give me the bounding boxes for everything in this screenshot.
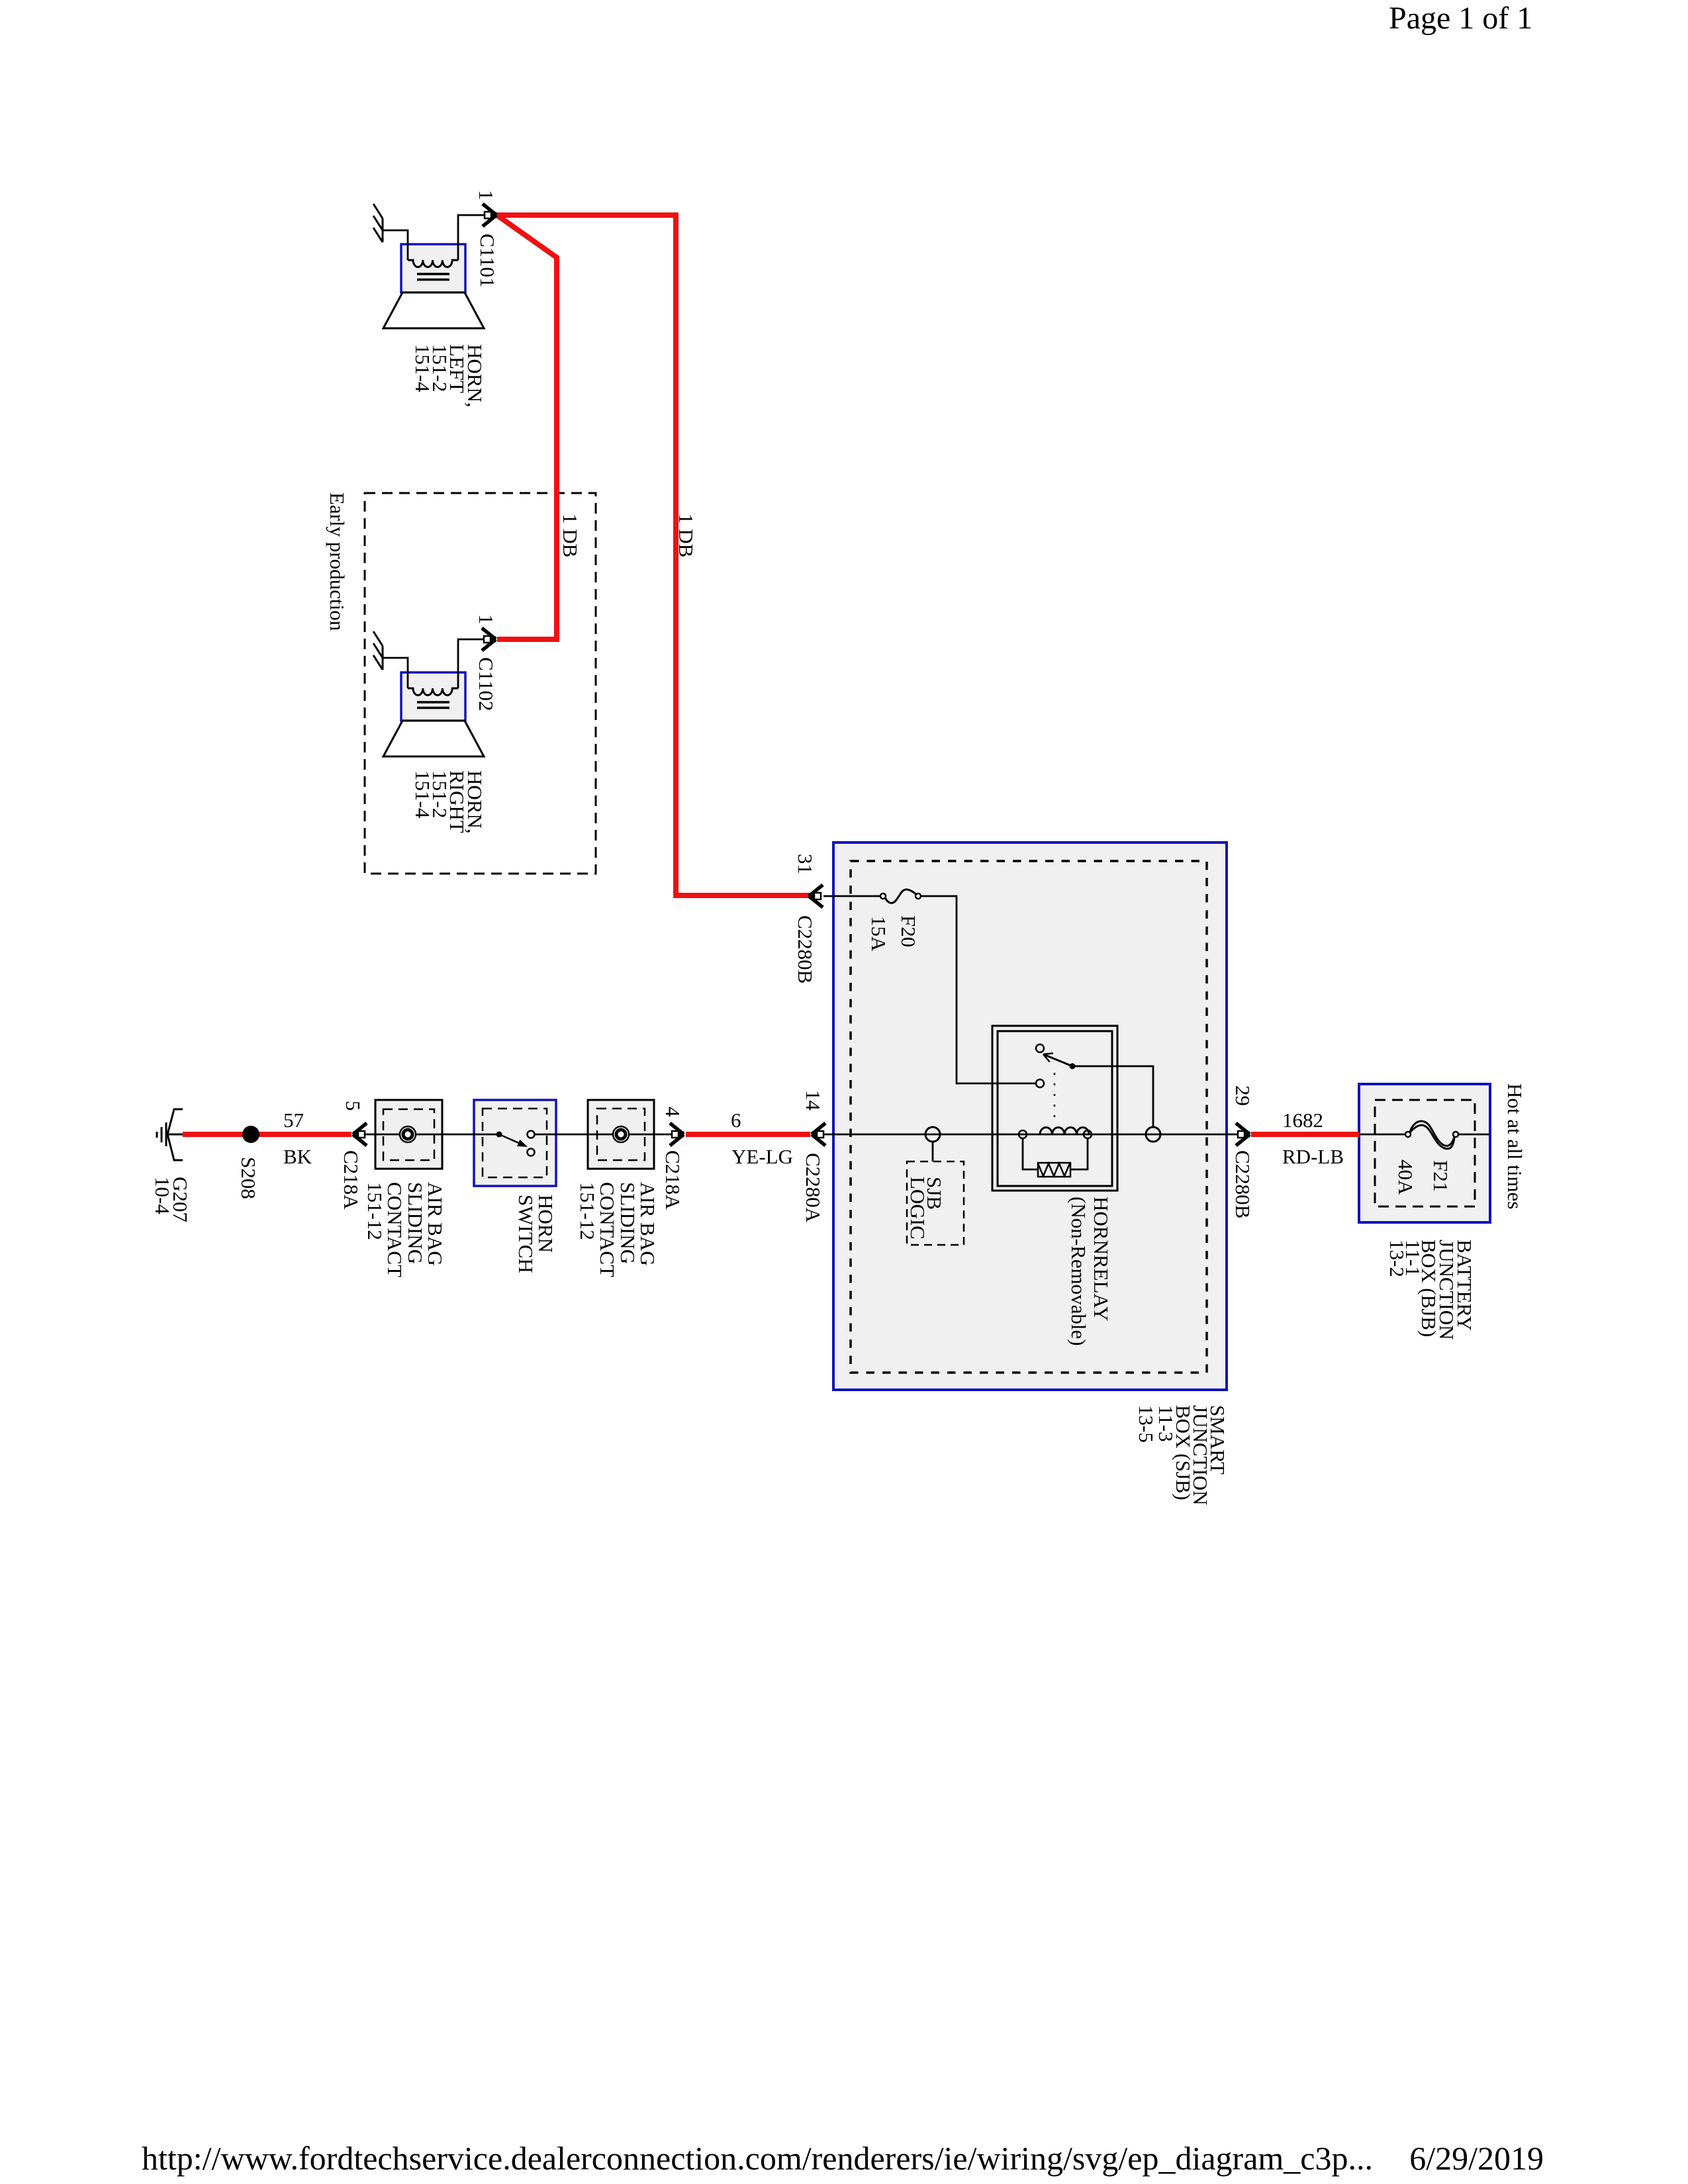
svg-text:14: 14 bbox=[802, 1090, 825, 1111]
svg-text:31: 31 bbox=[794, 854, 817, 874]
svg-text:(Non-Removable): (Non-Removable) bbox=[1067, 1197, 1090, 1346]
svg-text:15A: 15A bbox=[867, 916, 890, 952]
svg-text:151-4: 151-4 bbox=[411, 344, 434, 392]
svg-text:Early production: Early production bbox=[326, 492, 349, 631]
svg-text:151-12: 151-12 bbox=[576, 1182, 599, 1240]
svg-text:SLIDING: SLIDING bbox=[404, 1182, 427, 1264]
svg-text:http://www.fordtechservice.dea: http://www.fordtechservice.dealerconnect… bbox=[142, 2140, 1373, 2177]
svg-text:C1101: C1101 bbox=[476, 234, 499, 288]
svg-text:13-5: 13-5 bbox=[1135, 1405, 1158, 1443]
svg-text:YE-LG: YE-LG bbox=[731, 1145, 793, 1168]
svg-text:5: 5 bbox=[342, 1101, 365, 1111]
svg-text:C2280B: C2280B bbox=[1231, 1150, 1254, 1218]
svg-text:29: 29 bbox=[1231, 1085, 1254, 1106]
svg-text:57: 57 bbox=[283, 1109, 304, 1132]
svg-text:6/29/2019: 6/29/2019 bbox=[1409, 2140, 1544, 2177]
svg-text:1 DB: 1 DB bbox=[559, 514, 582, 557]
svg-text:Hot at all times: Hot at all times bbox=[1503, 1083, 1526, 1209]
svg-text:HORNRELAY: HORNRELAY bbox=[1090, 1197, 1113, 1321]
svg-text:1682: 1682 bbox=[1282, 1109, 1323, 1132]
svg-text:LOGIC: LOGIC bbox=[906, 1177, 929, 1240]
svg-text:F20: F20 bbox=[897, 915, 920, 947]
svg-text:1 DB: 1 DB bbox=[675, 514, 698, 557]
svg-text:SWITCH: SWITCH bbox=[514, 1195, 538, 1273]
svg-text:151-12: 151-12 bbox=[363, 1182, 387, 1240]
svg-text:1: 1 bbox=[475, 614, 498, 625]
svg-text:C218A: C218A bbox=[661, 1150, 684, 1210]
svg-text:F21: F21 bbox=[1429, 1160, 1452, 1192]
svg-text:BK: BK bbox=[283, 1145, 312, 1168]
svg-text:RD-LB: RD-LB bbox=[1282, 1145, 1344, 1168]
svg-text:10-4: 10-4 bbox=[151, 1177, 174, 1214]
svg-text:C2280A: C2280A bbox=[802, 1153, 825, 1223]
svg-text:C2280B: C2280B bbox=[794, 915, 817, 983]
svg-text:4: 4 bbox=[661, 1107, 684, 1117]
svg-text:S208: S208 bbox=[237, 1157, 260, 1199]
svg-text:C1102: C1102 bbox=[475, 657, 498, 711]
svg-text:13-2: 13-2 bbox=[1385, 1240, 1409, 1277]
svg-text:40A: 40A bbox=[1394, 1160, 1417, 1195]
svg-text:1: 1 bbox=[475, 190, 498, 201]
svg-text:SLIDING: SLIDING bbox=[616, 1182, 639, 1264]
svg-text:6: 6 bbox=[731, 1109, 741, 1132]
svg-text:151-4: 151-4 bbox=[411, 770, 434, 819]
svg-text:C218A: C218A bbox=[340, 1150, 363, 1210]
svg-text:Page 1 of 1: Page 1 of 1 bbox=[1389, 1, 1532, 36]
